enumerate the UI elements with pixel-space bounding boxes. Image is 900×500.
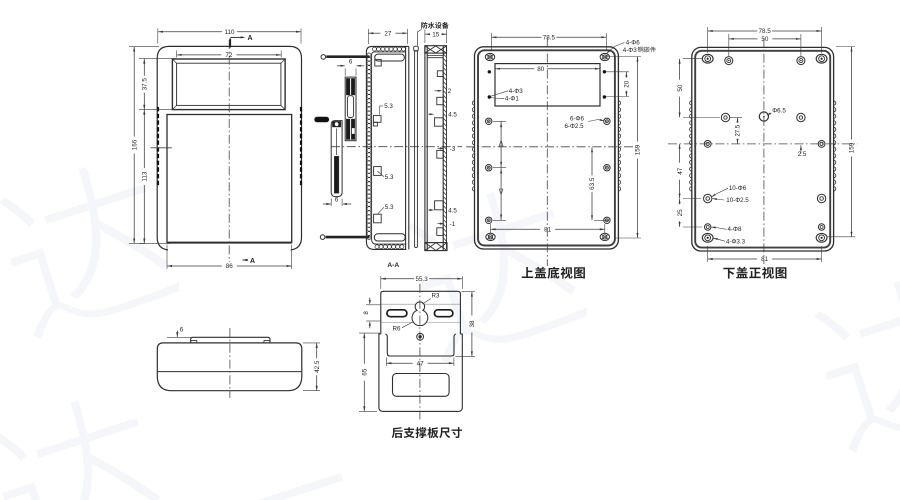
svg-text:4-Φ3.3: 4-Φ3.3 xyxy=(726,239,746,246)
svg-text:110: 110 xyxy=(224,29,235,36)
svg-text:5.3: 5.3 xyxy=(385,204,394,211)
svg-text:50: 50 xyxy=(761,36,769,43)
svg-text:4.5: 4.5 xyxy=(448,112,457,119)
svg-text:47: 47 xyxy=(677,167,684,175)
svg-text:86: 86 xyxy=(226,263,234,270)
svg-text:166: 166 xyxy=(131,139,138,150)
svg-text:38: 38 xyxy=(469,320,476,328)
svg-text:37.5: 37.5 xyxy=(142,78,149,91)
svg-text:-3: -3 xyxy=(450,146,456,153)
svg-text:47: 47 xyxy=(417,360,425,367)
svg-text:55.3: 55.3 xyxy=(415,276,428,283)
svg-text:27.5: 27.5 xyxy=(736,124,742,136)
svg-text:8: 8 xyxy=(363,311,370,315)
svg-text:78.5: 78.5 xyxy=(758,28,771,35)
svg-text:10-Φ2.5: 10-Φ2.5 xyxy=(726,197,749,204)
svg-text:2.5: 2.5 xyxy=(798,151,807,158)
svg-text:50: 50 xyxy=(677,84,684,92)
svg-text:5.3: 5.3 xyxy=(384,103,393,110)
svg-text:6-Φ6: 6-Φ6 xyxy=(570,115,584,122)
svg-text:27: 27 xyxy=(384,30,392,37)
svg-text:113: 113 xyxy=(142,171,149,182)
svg-text:4-Φ8: 4-Φ8 xyxy=(728,226,742,233)
svg-text:25: 25 xyxy=(677,209,684,217)
svg-text:A: A xyxy=(250,258,255,265)
svg-text:A-A: A-A xyxy=(387,262,399,269)
svg-text:72: 72 xyxy=(225,52,233,59)
svg-text:42.5: 42.5 xyxy=(314,360,321,373)
svg-text:6: 6 xyxy=(349,59,353,66)
svg-text:4-Φ3: 4-Φ3 xyxy=(623,47,637,54)
svg-text:6-Φ2.5: 6-Φ2.5 xyxy=(564,123,584,130)
svg-text:81: 81 xyxy=(544,227,552,234)
svg-text:81: 81 xyxy=(761,256,769,263)
svg-text:78.5: 78.5 xyxy=(543,34,556,41)
svg-text:A: A xyxy=(247,35,252,42)
svg-text:-1: -1 xyxy=(450,221,456,228)
svg-text:20: 20 xyxy=(624,80,631,88)
svg-text:10-Φ6: 10-Φ6 xyxy=(729,185,747,192)
svg-text:Φ6.5: Φ6.5 xyxy=(772,108,786,115)
svg-text:6: 6 xyxy=(180,327,184,334)
svg-text:6: 6 xyxy=(335,197,339,204)
svg-text:4.5: 4.5 xyxy=(448,207,457,214)
svg-text:63.5: 63.5 xyxy=(589,177,596,190)
svg-text:159: 159 xyxy=(635,144,642,155)
svg-text:4-Φ6: 4-Φ6 xyxy=(626,39,640,46)
svg-text:4-Φ1: 4-Φ1 xyxy=(505,96,519,103)
svg-text:80: 80 xyxy=(537,66,545,73)
svg-text:R3: R3 xyxy=(432,293,440,300)
svg-text:2: 2 xyxy=(448,88,452,95)
svg-text:R6: R6 xyxy=(393,325,401,332)
svg-text:15: 15 xyxy=(432,31,440,38)
svg-text:4-Φ3: 4-Φ3 xyxy=(509,88,523,95)
svg-text:5.3: 5.3 xyxy=(385,174,394,181)
svg-text:65: 65 xyxy=(362,368,369,376)
